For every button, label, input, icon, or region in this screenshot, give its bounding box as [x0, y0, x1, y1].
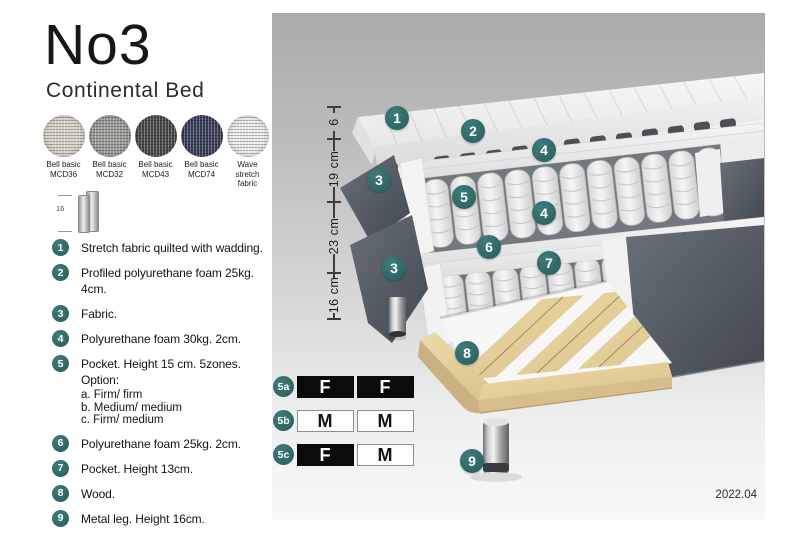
dim-label-16cm: 16 cm	[327, 273, 341, 317]
callout-1: 1	[385, 106, 409, 130]
metal-leg-thumbnail: 16	[56, 186, 116, 238]
legend-item-text: Polyurethane foam 30kg. 2cm.	[81, 330, 241, 347]
legend-number-badge: 3	[52, 305, 69, 322]
legend-item-1: 1 Stretch fabric quilted with wadding.	[52, 239, 277, 256]
swatch-mcd43: Bell basic MCD43	[134, 115, 177, 189]
dim-label-23cm: 23 cm	[327, 214, 341, 258]
dimension-line	[58, 231, 72, 232]
legend-item-3: 3 Fabric.	[52, 305, 277, 322]
fabric-swatch-icon	[227, 115, 269, 157]
swatch-wave-stretch: Wave stretch fabric	[226, 115, 269, 189]
dim-label-6cm: 6	[327, 100, 341, 144]
legend-item-text: Pocket. Height 13cm.	[81, 460, 193, 477]
firmness-cell: M	[297, 410, 354, 432]
firmness-cell: M	[357, 410, 414, 432]
legend-item-5-options: a. Firm/ firm b. Medium/ medium c. Firm/…	[81, 389, 277, 427]
firmness-row-label-5b: 5b	[273, 410, 294, 431]
fabric-swatch-icon	[181, 115, 223, 157]
callout-5: 5	[452, 185, 476, 209]
page-title: No3	[44, 12, 152, 78]
fabric-side-right-upper	[720, 158, 764, 225]
firmness-cell: M	[357, 444, 414, 466]
page-subtitle: Continental Bed	[46, 79, 204, 103]
swatch-code: MCD36	[50, 170, 77, 179]
dimension-line	[58, 195, 72, 196]
swatch-code: stretch fabric	[235, 170, 259, 189]
callout-4-lower: 4	[532, 201, 556, 225]
legend-item-2: 2 Profiled polyurethane foam 25kg. 4cm.	[52, 264, 277, 297]
legend-number-badge: 4	[52, 330, 69, 347]
legend-number-badge: 5	[52, 355, 69, 372]
leg-cylinder-icon	[78, 195, 90, 233]
fabric-swatches: Bell basic MCD36 Bell basic MCD32 Bell b…	[42, 115, 269, 189]
dim-label-19cm: 19 cm	[327, 147, 341, 191]
legend-item-6: 6 Polyurethane foam 25kg. 2cm.	[52, 435, 277, 452]
legend-number-badge: 1	[52, 239, 69, 256]
legend-item-text: Pocket. Height 15 cm. 5zones. Option:	[81, 355, 277, 388]
leg-height-label: 16	[56, 204, 64, 213]
swatch-code: MCD74	[188, 170, 215, 179]
legend-item-text: Polyurethane foam 25kg. 2cm.	[81, 435, 241, 452]
legend-item-text: Metal leg. Height 16cm.	[81, 510, 205, 527]
diagram-panel: 6 19 cm 23 cm 16 cm 1 2 4 3 5 4 6 7 3 8 …	[272, 13, 765, 520]
firmness-row-label-5c: 5c	[273, 444, 294, 465]
legend-item-4: 4 Polyurethane foam 30kg. 2cm.	[52, 330, 277, 347]
option-c: c. Firm/ medium	[81, 414, 277, 427]
version-date: 2022.04	[662, 489, 757, 501]
legend-number-badge: 6	[52, 435, 69, 452]
legend-item-text: Wood.	[81, 485, 115, 502]
callout-8: 8	[455, 341, 479, 365]
legend-number-badge: 7	[52, 460, 69, 477]
swatch-label: Wave	[237, 160, 257, 169]
legend-number-badge: 2	[52, 264, 69, 281]
callout-3-upper: 3	[367, 168, 391, 192]
swatch-code: MCD43	[142, 170, 169, 179]
fabric-swatch-icon	[43, 115, 85, 157]
option-a: a. Firm/ firm	[81, 389, 277, 402]
firmness-cell: F	[297, 444, 354, 466]
parts-legend: 1 Stretch fabric quilted with wadding. 2…	[52, 239, 277, 527]
option-b: b. Medium/ medium	[81, 402, 277, 415]
swatch-label: Bell basic	[184, 160, 218, 169]
legend-item-text: Stretch fabric quilted with wadding.	[81, 239, 263, 256]
frame-column-right-upper	[695, 149, 724, 217]
callout-7: 7	[537, 251, 561, 275]
swatch-label: Bell basic	[138, 160, 172, 169]
legend-item-text: Profiled polyurethane foam 25kg. 4cm.	[81, 264, 277, 297]
swatch-mcd74: Bell basic MCD74	[180, 115, 223, 189]
metal-leg-back	[389, 297, 407, 341]
legend-number-badge: 8	[52, 485, 69, 502]
fabric-swatch-icon	[135, 115, 177, 157]
legend-item-8: 8 Wood.	[52, 485, 277, 502]
callout-3-lower: 3	[382, 256, 406, 280]
swatch-mcd32: Bell basic MCD32	[88, 115, 131, 189]
fabric-swatch-icon	[89, 115, 131, 157]
firmness-cell: F	[357, 376, 414, 398]
ruler-tick	[327, 318, 341, 320]
callout-2: 2	[461, 119, 485, 143]
legend-item-7: 7 Pocket. Height 13cm.	[52, 460, 277, 477]
legend-item-9: 9 Metal leg. Height 16cm.	[52, 510, 277, 527]
callout-6: 6	[477, 235, 501, 259]
legend-item-5: 5 Pocket. Height 15 cm. 5zones. Option: …	[52, 355, 277, 427]
legend-item-text: Fabric.	[81, 305, 117, 322]
swatch-code: MCD32	[96, 170, 123, 179]
callout-9: 9	[460, 449, 484, 473]
legend-number-badge: 9	[52, 510, 69, 527]
firmness-row-label-5a: 5a	[273, 376, 294, 397]
swatch-label: Bell basic	[92, 160, 126, 169]
product-sheet: No3 Continental Bed Bell basic MCD36 Bel…	[0, 0, 800, 533]
swatch-label: Bell basic	[46, 160, 80, 169]
swatch-mcd36: Bell basic MCD36	[42, 115, 85, 189]
firmness-cell: F	[297, 376, 354, 398]
callout-4-upper: 4	[532, 138, 556, 162]
